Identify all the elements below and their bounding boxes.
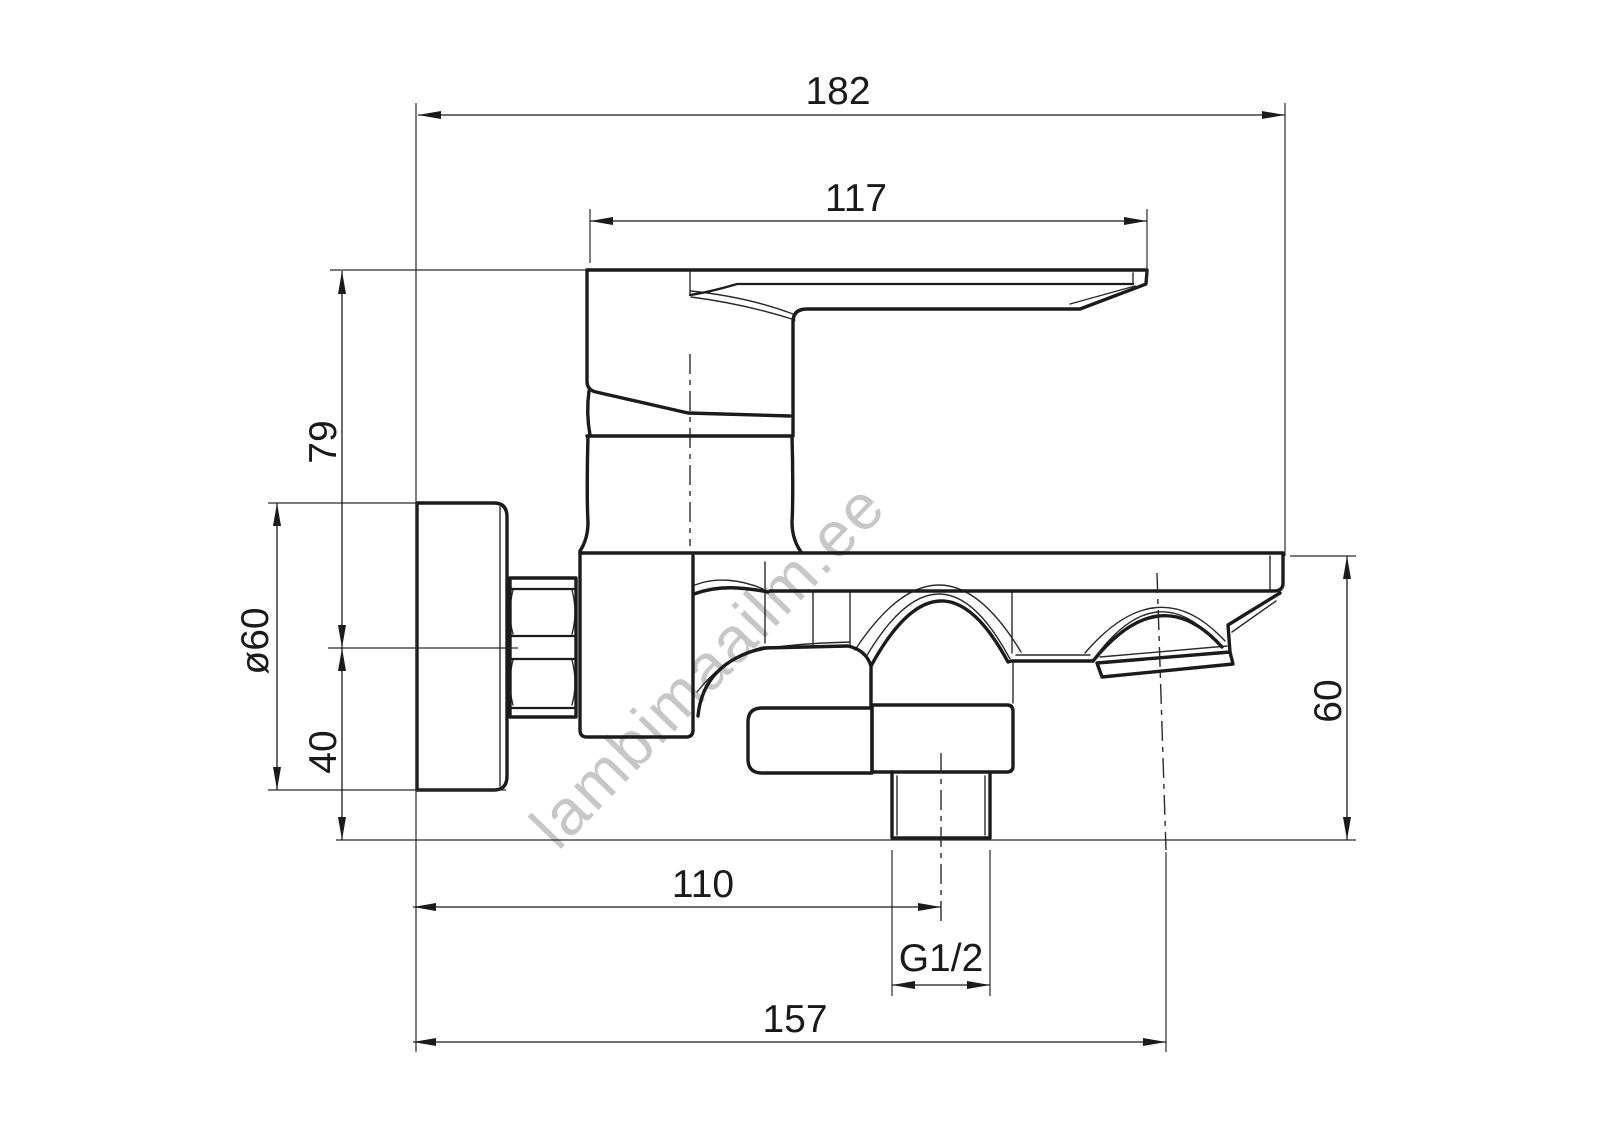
dim-label-axis-to-flange-bottom: 40 [302, 730, 345, 773]
drawing-page: lambimaailm.ee [0, 0, 1600, 1131]
dim-label-handle-height: 79 [302, 420, 345, 463]
dim-label-flange-diameter: ø60 [234, 607, 277, 674]
dim-label-wall-to-shower-outlet: 110 [672, 863, 734, 906]
dim-label-overall-depth: 157 [762, 998, 827, 1041]
dim-label-thread-size: G1/2 [899, 937, 984, 980]
dim-label-spout-height: 60 [1307, 679, 1350, 722]
dim-label-handle-reach: 117 [825, 177, 887, 220]
dim-label-overall-length: 182 [805, 70, 870, 113]
technical-drawing: lambimaailm.ee [0, 0, 1600, 1131]
